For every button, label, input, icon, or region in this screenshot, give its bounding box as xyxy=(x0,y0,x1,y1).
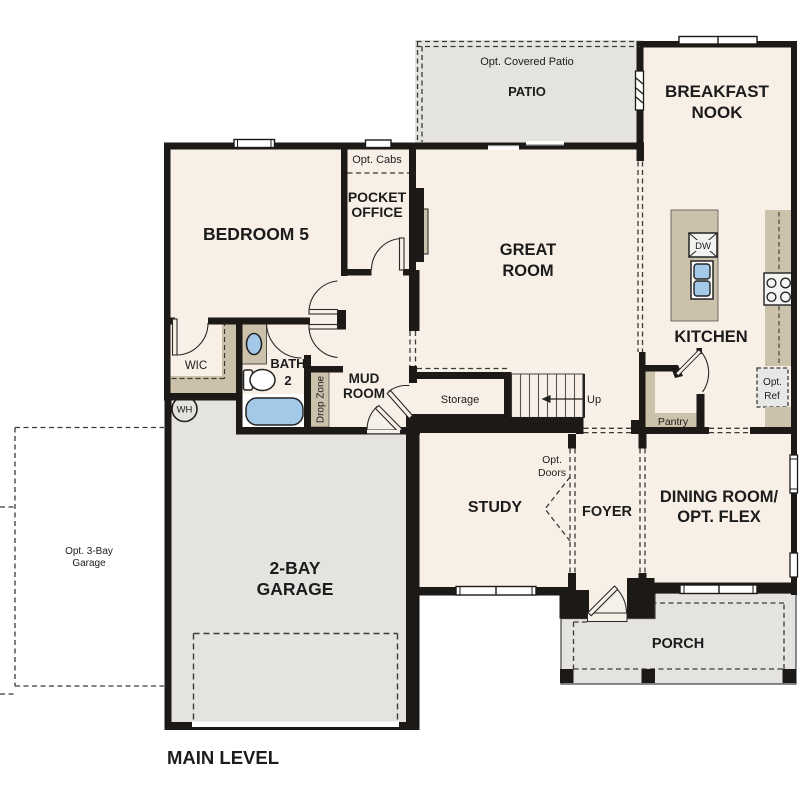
svg-text:GARAGE: GARAGE xyxy=(257,579,334,599)
svg-text:DINING ROOM/: DINING ROOM/ xyxy=(660,488,779,506)
svg-text:NOOK: NOOK xyxy=(692,103,744,122)
svg-text:BATH: BATH xyxy=(270,356,305,371)
svg-text:Ref: Ref xyxy=(764,391,780,402)
svg-text:BREAKFAST: BREAKFAST xyxy=(665,82,770,101)
svg-text:DW: DW xyxy=(695,241,711,252)
svg-text:MUD: MUD xyxy=(349,371,380,386)
svg-text:WIC: WIC xyxy=(185,360,207,372)
svg-text:2-BAY: 2-BAY xyxy=(270,558,321,578)
svg-text:BEDROOM 5: BEDROOM 5 xyxy=(203,224,309,244)
svg-text:WH: WH xyxy=(177,405,193,416)
svg-text:Garage: Garage xyxy=(72,558,106,569)
svg-text:ROOM: ROOM xyxy=(343,386,385,401)
svg-text:GREAT: GREAT xyxy=(500,241,557,259)
svg-text:Up: Up xyxy=(587,394,601,406)
svg-text:Pantry: Pantry xyxy=(658,416,689,428)
svg-text:PORCH: PORCH xyxy=(652,636,704,652)
svg-text:Doors: Doors xyxy=(538,467,566,479)
svg-text:OFFICE: OFFICE xyxy=(351,204,402,220)
svg-text:2: 2 xyxy=(284,373,291,388)
svg-text:POCKET: POCKET xyxy=(348,189,407,205)
svg-text:Opt. 3-Bay: Opt. 3-Bay xyxy=(65,546,113,557)
svg-text:KITCHEN: KITCHEN xyxy=(674,328,747,346)
svg-text:STUDY: STUDY xyxy=(468,499,523,516)
svg-text:ROOM: ROOM xyxy=(502,262,553,280)
svg-text:Storage: Storage xyxy=(441,394,480,406)
svg-text:Opt.: Opt. xyxy=(763,377,782,388)
svg-text:Drop Zone: Drop Zone xyxy=(316,375,327,423)
svg-text:PATIO: PATIO xyxy=(508,84,546,99)
svg-text:Opt.: Opt. xyxy=(542,454,562,466)
svg-text:Opt. Covered Patio: Opt. Covered Patio xyxy=(480,56,574,68)
svg-text:FOYER: FOYER xyxy=(582,504,632,520)
svg-text:Opt. Cabs: Opt. Cabs xyxy=(352,154,402,166)
svg-text:OPT. FLEX: OPT. FLEX xyxy=(677,508,760,526)
svg-text:MAIN LEVEL: MAIN LEVEL xyxy=(167,747,279,768)
